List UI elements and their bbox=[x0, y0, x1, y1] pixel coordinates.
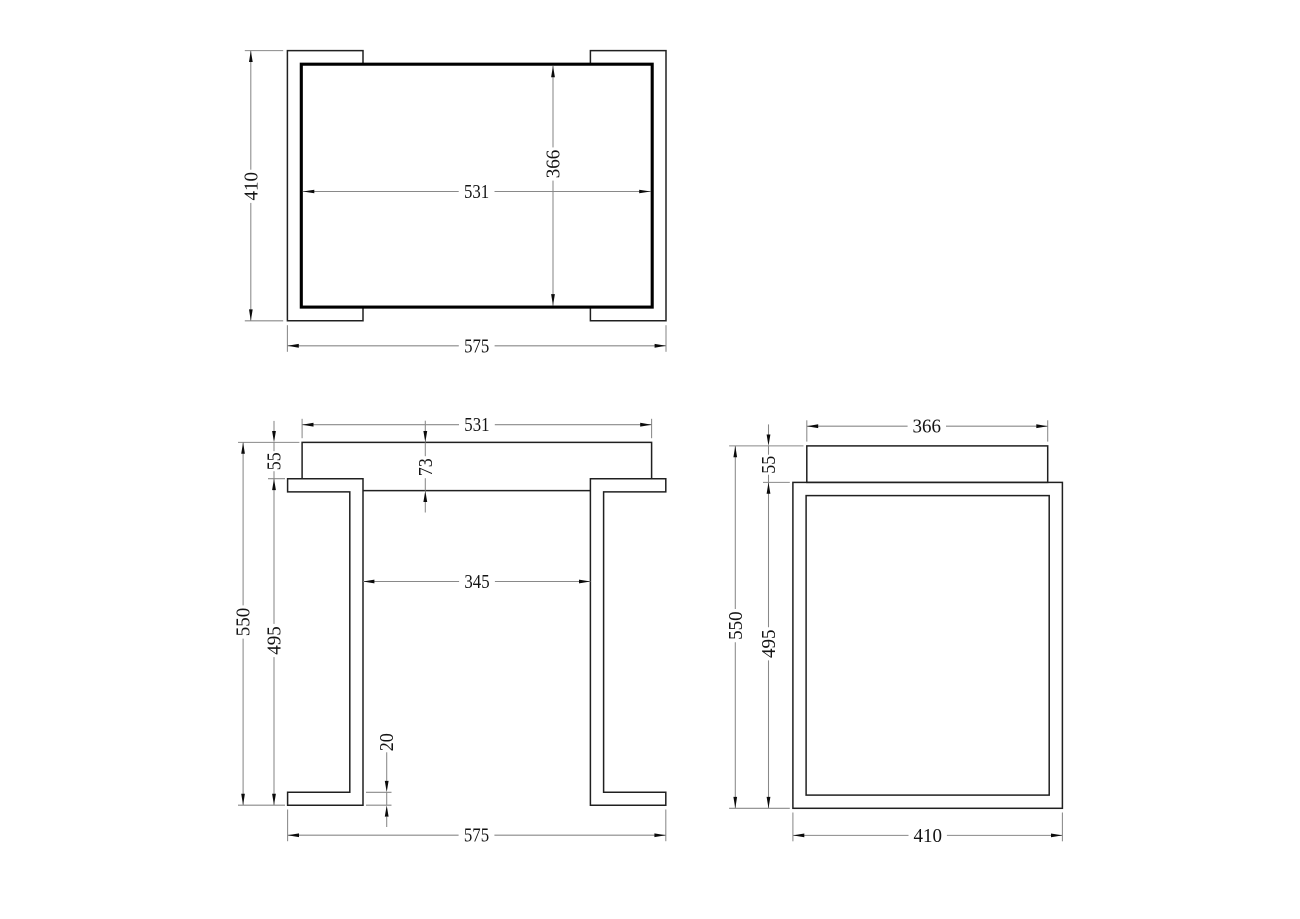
svg-text:366: 366 bbox=[543, 150, 565, 179]
svg-text:531: 531 bbox=[464, 414, 489, 436]
svg-text:55: 55 bbox=[264, 452, 286, 470]
svg-text:495: 495 bbox=[264, 626, 286, 655]
svg-text:410: 410 bbox=[913, 825, 942, 847]
svg-text:531: 531 bbox=[464, 181, 489, 203]
svg-text:73: 73 bbox=[415, 458, 437, 476]
svg-text:575: 575 bbox=[464, 335, 489, 357]
svg-text:55: 55 bbox=[758, 456, 780, 474]
svg-text:550: 550 bbox=[725, 611, 747, 640]
svg-text:550: 550 bbox=[233, 608, 255, 637]
svg-text:495: 495 bbox=[758, 630, 780, 659]
svg-text:575: 575 bbox=[464, 825, 489, 847]
svg-text:345: 345 bbox=[464, 571, 489, 593]
svg-text:410: 410 bbox=[240, 172, 262, 201]
svg-text:20: 20 bbox=[376, 733, 398, 751]
svg-text:366: 366 bbox=[913, 416, 942, 438]
